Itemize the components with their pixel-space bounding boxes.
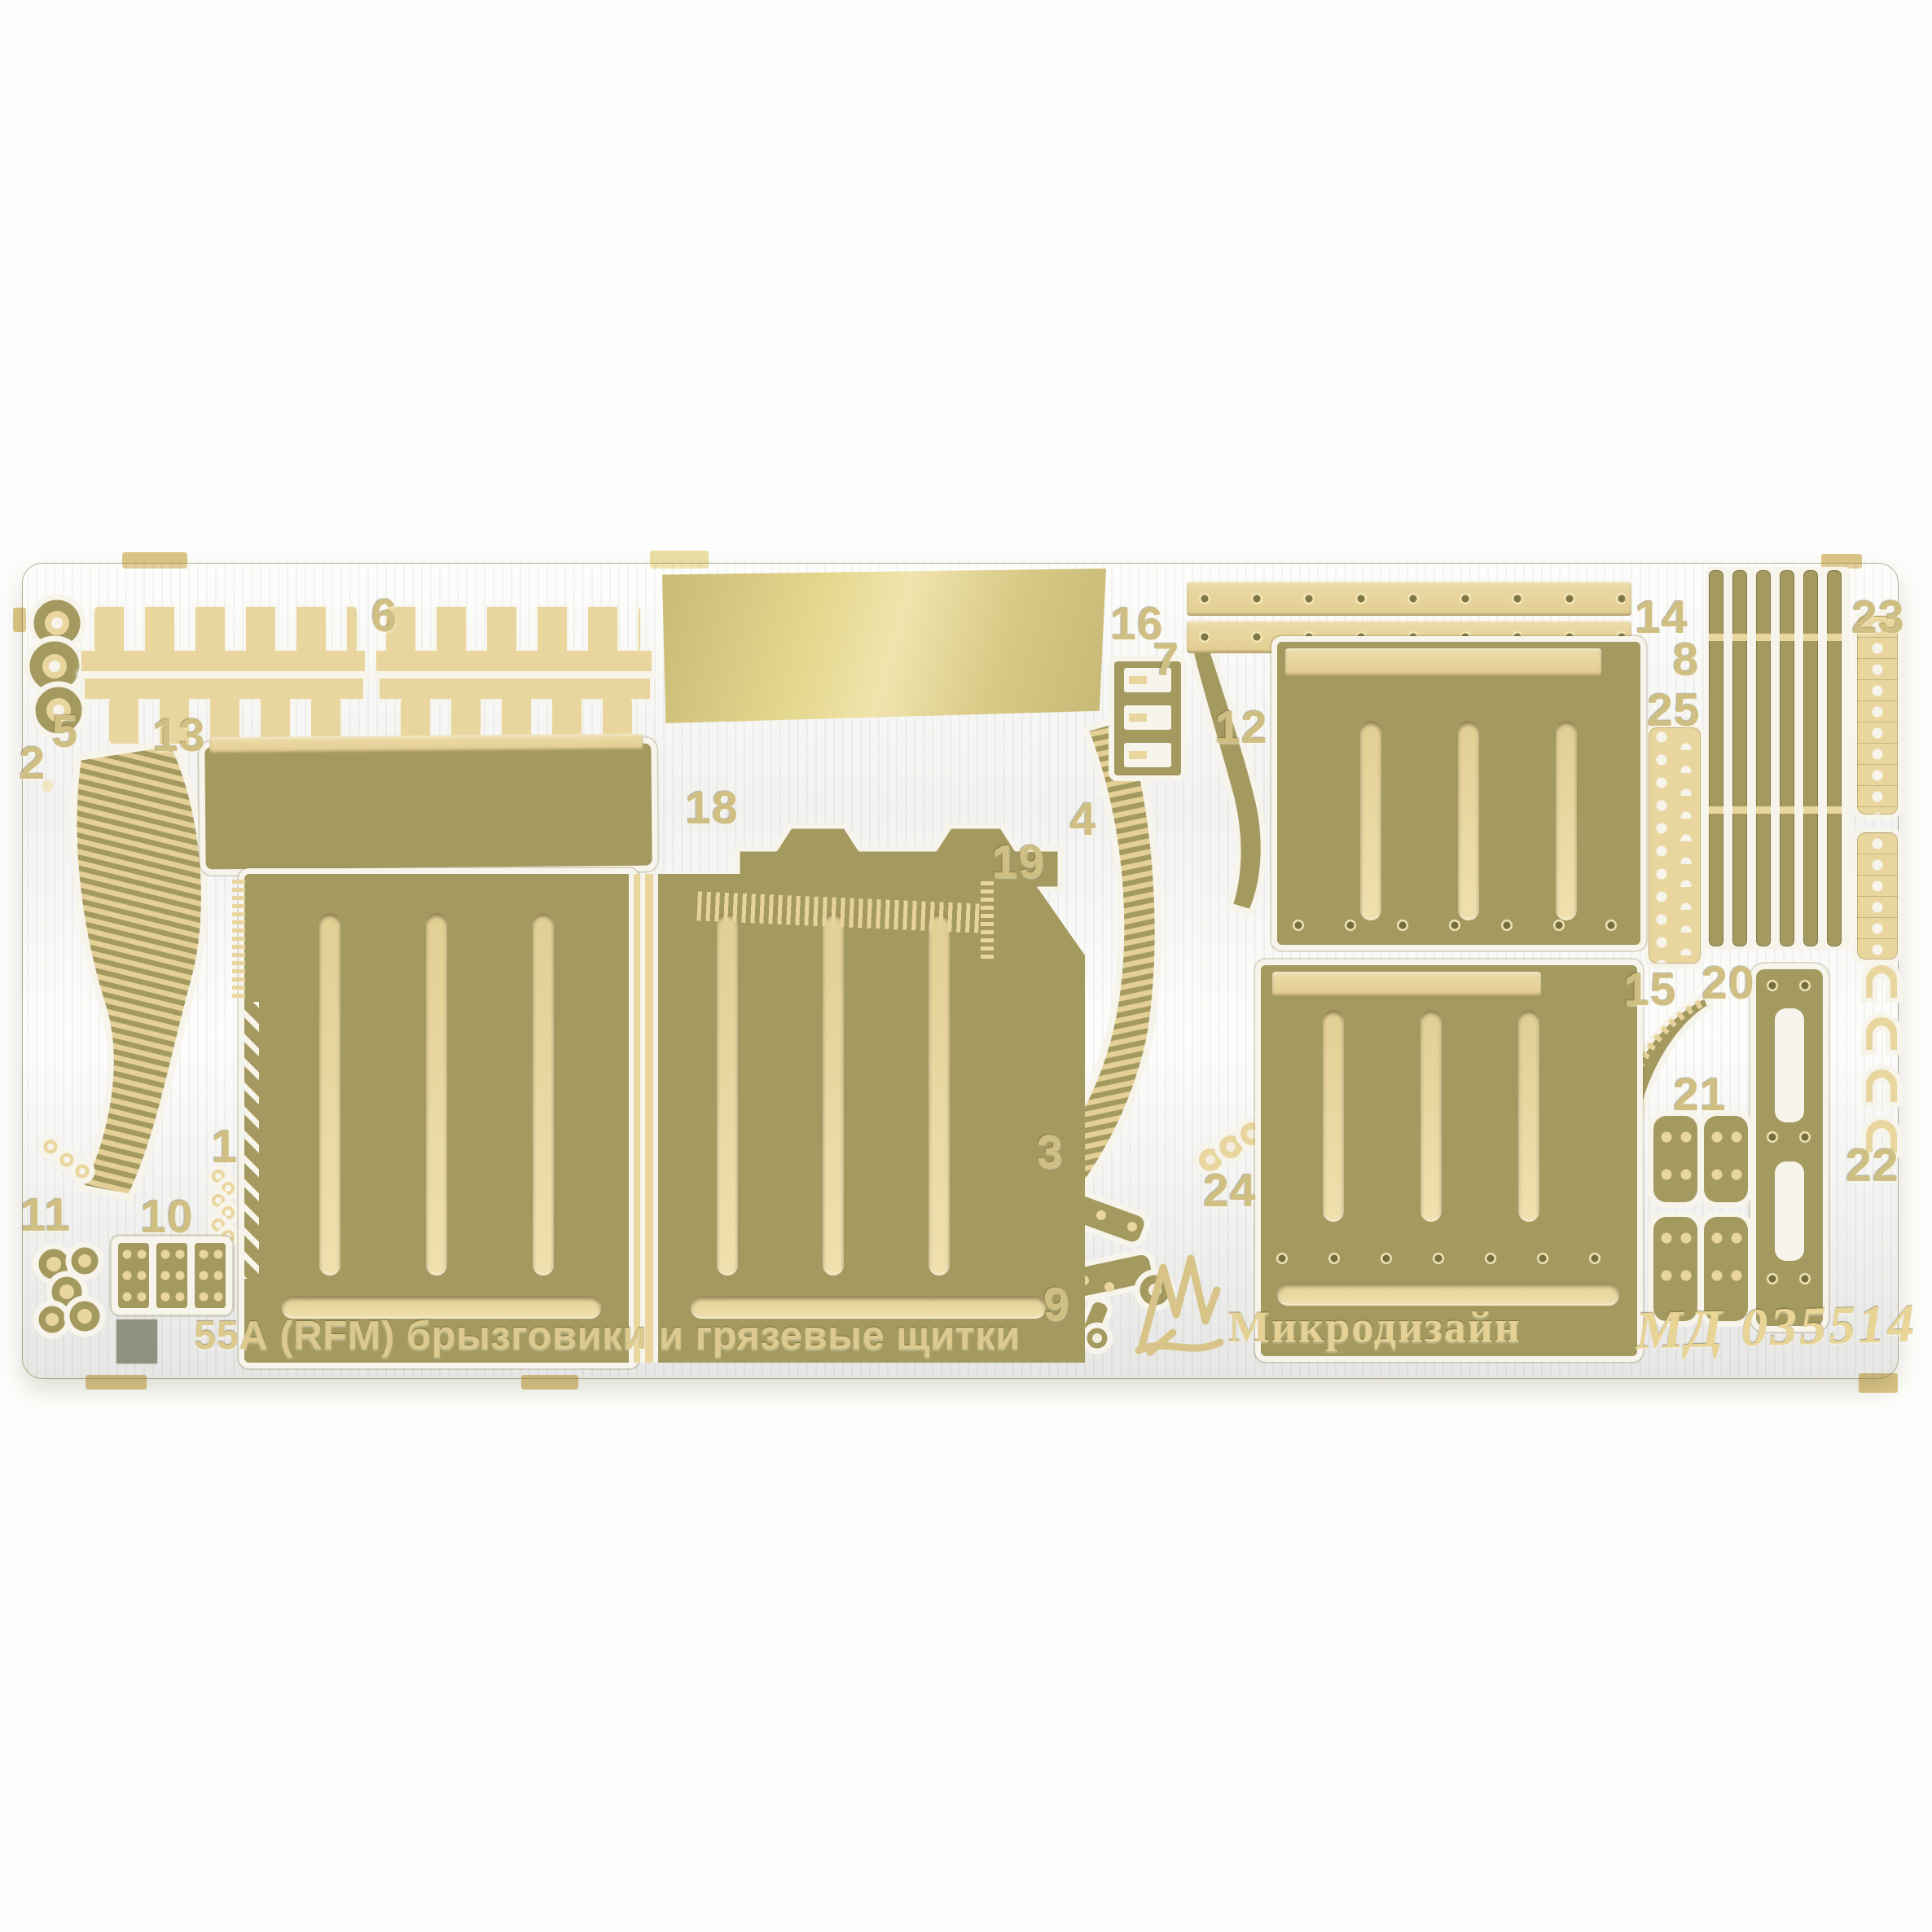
sawtooth-edge	[239, 1002, 259, 1279]
part-label-15: 15	[1623, 963, 1676, 1016]
part-1-eyelet-chain	[209, 1167, 237, 1245]
part-10-grid-bracket	[112, 1236, 232, 1315]
part-label-23: 23	[1851, 591, 1904, 644]
part-label-4: 4	[1070, 793, 1097, 846]
part-label-11: 11	[20, 1188, 71, 1242]
part-23-hex-chain-b	[1857, 832, 1898, 959]
part-13-flat-plate	[204, 744, 652, 870]
sheet-caption: 55А (RFM) брызговики и грязевые щитки	[194, 1313, 1021, 1359]
part-label-16: 16	[1110, 597, 1163, 651]
part-label-13: 13	[152, 709, 205, 762]
part-label-3: 3	[1037, 1125, 1064, 1179]
etched-edge-bar	[209, 734, 643, 754]
part-label-1: 1	[212, 1120, 239, 1174]
part-2-mudguard-arc	[74, 743, 204, 1197]
fine-rack-left	[232, 880, 245, 1002]
part-8-strip-set	[1706, 567, 1851, 950]
part-label-6: 6	[371, 589, 398, 643]
part-label-5: 5	[52, 705, 79, 758]
part-21-pad	[1704, 1116, 1748, 1202]
part-20-slotted-strip	[1756, 969, 1823, 1326]
center-splitter-band	[629, 874, 658, 1363]
fine-rack-center	[981, 881, 994, 963]
part-label-18: 18	[685, 781, 738, 835]
part-label-9: 9	[1043, 1277, 1070, 1331]
center-fender-plate-left	[244, 874, 634, 1363]
part-label-10: 10	[140, 1190, 193, 1244]
part-12-curved-bracket	[1186, 617, 1263, 912]
part-16-shiny-plate	[662, 569, 1106, 723]
part-22-clips	[1864, 963, 1899, 1155]
part-label-25: 25	[1647, 683, 1700, 737]
brand-name-text: Микродизайн	[1228, 1302, 1521, 1352]
part-label-20: 20	[1701, 956, 1754, 1010]
part-14-rail-a	[1187, 582, 1631, 616]
part-label-2: 2	[20, 736, 46, 790]
part-6-track-comb-b	[376, 607, 652, 745]
part-label-21: 21	[1673, 1068, 1726, 1122]
gray-patch	[116, 1319, 157, 1363]
part-6-track-comb-a	[81, 607, 365, 745]
center-fender-plate-right	[652, 874, 1085, 1363]
upper-right-fender-plate	[1277, 642, 1640, 945]
product-code-text: МД 035514	[1635, 1293, 1917, 1362]
part-label-14: 14	[1635, 591, 1688, 644]
part-23-hex-chain-a	[1857, 616, 1898, 815]
part-21-pad	[1653, 1116, 1697, 1202]
part-label-19: 19	[991, 835, 1044, 889]
part-label-24: 24	[1203, 1164, 1256, 1218]
part-label-12: 12	[1214, 700, 1267, 754]
photo-etched-brass-fret-scan: 123456789101112131415161819202122232425 …	[0, 0, 1932, 1932]
lower-right-fender-plate	[1261, 965, 1637, 1356]
part-25-honeycomb	[1649, 727, 1701, 964]
part-label-22: 22	[1846, 1139, 1899, 1192]
